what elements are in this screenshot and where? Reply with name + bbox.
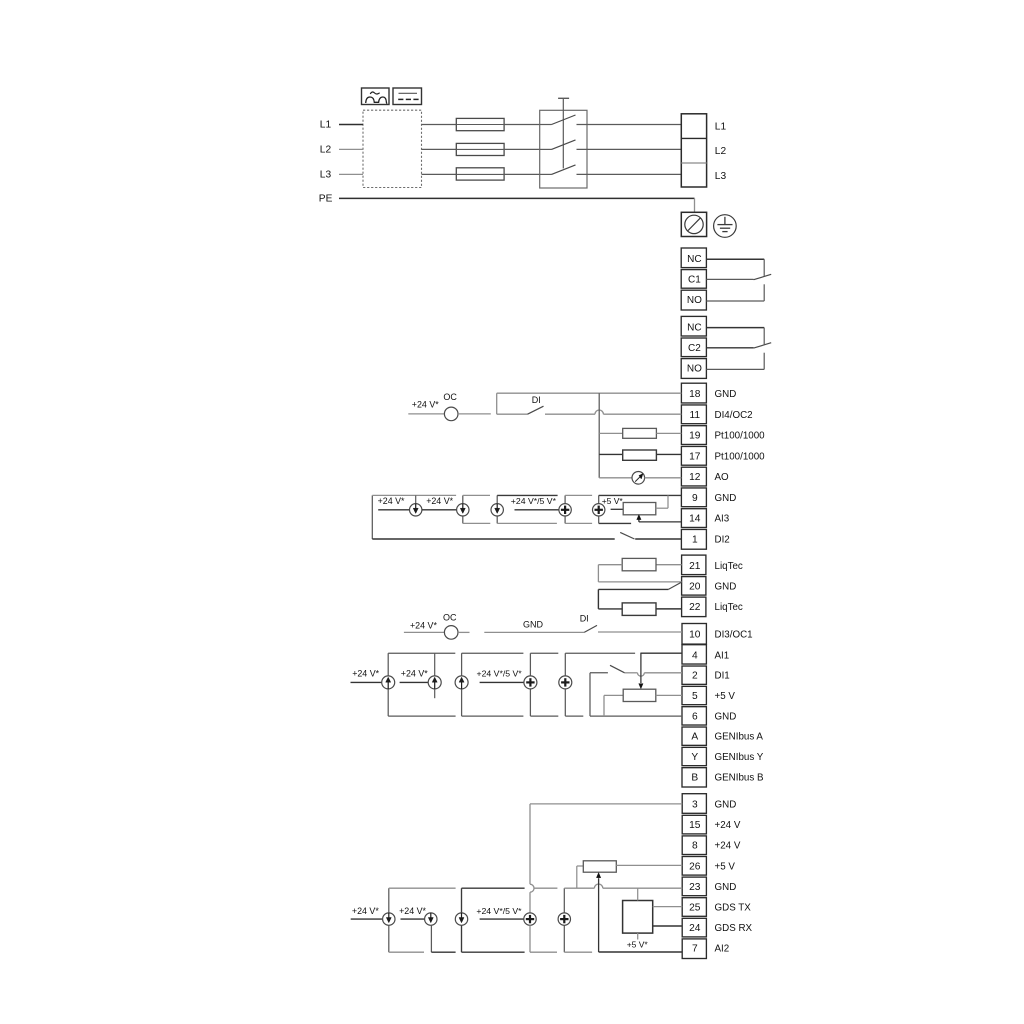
svg-text:+5 V*: +5 V* <box>602 496 624 506</box>
svg-text:GENIbus B: GENIbus B <box>715 772 764 783</box>
svg-text:+5 V*: +5 V* <box>627 939 649 949</box>
svg-text:L2: L2 <box>320 144 332 155</box>
svg-text:C1: C1 <box>688 275 701 286</box>
svg-text:24: 24 <box>689 923 701 934</box>
svg-text:OC: OC <box>443 392 457 402</box>
svg-text:GENIbus A: GENIbus A <box>715 732 764 743</box>
svg-text:NC: NC <box>687 254 701 265</box>
svg-text:15: 15 <box>689 820 701 831</box>
svg-text:12: 12 <box>689 472 701 483</box>
svg-text:GND: GND <box>715 581 737 592</box>
svg-text:NO: NO <box>687 364 702 375</box>
svg-text:L2: L2 <box>715 146 727 157</box>
svg-text:+24 V*: +24 V* <box>426 496 453 506</box>
svg-text:A: A <box>691 732 698 743</box>
svg-text:23: 23 <box>689 882 701 893</box>
svg-text:11: 11 <box>690 410 701 421</box>
svg-text:+24 V*: +24 V* <box>378 496 405 506</box>
svg-text:DI: DI <box>580 613 589 623</box>
svg-text:25: 25 <box>689 903 701 914</box>
svg-text:10: 10 <box>689 629 701 640</box>
svg-text:L3: L3 <box>715 171 727 182</box>
svg-text:NO: NO <box>687 295 702 306</box>
svg-text:+5 V: +5 V <box>715 691 736 702</box>
svg-text:L1: L1 <box>715 122 727 133</box>
svg-text:+24 V*/5 V*: +24 V*/5 V* <box>477 669 523 679</box>
svg-text:+24 V*: +24 V* <box>410 620 437 630</box>
svg-text:LiqTec: LiqTec <box>715 602 743 613</box>
svg-text:18: 18 <box>689 389 701 400</box>
svg-text:22: 22 <box>689 602 701 613</box>
svg-text:L3: L3 <box>320 169 332 180</box>
svg-text:DI3/OC1: DI3/OC1 <box>715 629 753 640</box>
svg-text:GND: GND <box>523 619 544 629</box>
svg-text:4: 4 <box>692 650 698 661</box>
svg-text:GENIbus Y: GENIbus Y <box>715 752 764 763</box>
svg-text:+24 V: +24 V <box>715 820 741 831</box>
svg-text:NC: NC <box>687 322 701 333</box>
svg-text:+24 V*: +24 V* <box>352 906 379 916</box>
svg-text:3: 3 <box>692 800 698 811</box>
svg-text:DI4/OC2: DI4/OC2 <box>715 410 753 421</box>
svg-text:Pt100/1000: Pt100/1000 <box>715 431 766 442</box>
svg-text:AI2: AI2 <box>715 944 730 955</box>
svg-text:+24 V*/5 V*: +24 V*/5 V* <box>476 906 522 916</box>
svg-text:21: 21 <box>689 561 701 572</box>
svg-text:OC: OC <box>443 612 457 622</box>
svg-text:1: 1 <box>692 534 698 545</box>
svg-text:+24 V*: +24 V* <box>352 669 379 679</box>
svg-text:14: 14 <box>689 514 701 525</box>
svg-text:DI: DI <box>532 395 541 405</box>
svg-text:B: B <box>691 772 698 783</box>
svg-text:+24 V*: +24 V* <box>412 399 439 409</box>
svg-text:GDS TX: GDS TX <box>715 903 752 914</box>
svg-text:+24 V*: +24 V* <box>399 906 426 916</box>
svg-text:6: 6 <box>692 711 698 722</box>
svg-text:AI3: AI3 <box>715 514 730 525</box>
svg-text:GND: GND <box>715 389 737 400</box>
svg-text:17: 17 <box>689 451 701 462</box>
svg-text:9: 9 <box>692 493 698 504</box>
svg-text:+24 V*/5 V*: +24 V*/5 V* <box>511 496 557 506</box>
svg-text:8: 8 <box>692 841 698 852</box>
svg-text:26: 26 <box>689 861 701 872</box>
svg-text:LiqTec: LiqTec <box>715 561 743 572</box>
svg-text:+5 V: +5 V <box>715 861 736 872</box>
svg-text:GDS RX: GDS RX <box>715 923 753 934</box>
svg-text:DI2: DI2 <box>715 534 730 545</box>
svg-text:GND: GND <box>715 711 737 722</box>
svg-text:2: 2 <box>692 671 698 682</box>
svg-text:+24 V: +24 V <box>715 841 741 852</box>
svg-text:AO: AO <box>715 472 730 483</box>
svg-text:20: 20 <box>689 581 701 592</box>
svg-text:L1: L1 <box>320 119 332 130</box>
svg-text:+24 V*: +24 V* <box>401 669 428 679</box>
svg-text:GND: GND <box>715 493 737 504</box>
svg-text:DI1: DI1 <box>715 671 730 682</box>
svg-text:Y: Y <box>691 752 698 763</box>
svg-text:GND: GND <box>715 882 737 893</box>
svg-text:Pt100/1000: Pt100/1000 <box>715 451 766 462</box>
svg-text:PE: PE <box>319 193 333 204</box>
svg-text:GND: GND <box>715 800 737 811</box>
svg-text:5: 5 <box>692 691 698 702</box>
svg-text:C2: C2 <box>688 343 701 354</box>
svg-text:7: 7 <box>692 944 698 955</box>
svg-text:AI1: AI1 <box>715 650 730 661</box>
svg-text:19: 19 <box>689 431 701 442</box>
